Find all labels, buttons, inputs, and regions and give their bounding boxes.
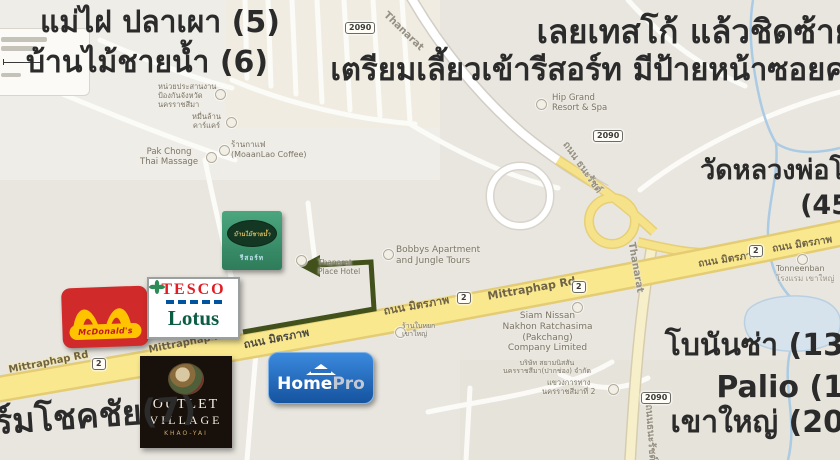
annotation-temple: วัดหลวงพ่อโ (700, 155, 840, 188)
poi-government-office: หน่วยประสานงานป้องกันจังหวัดนครราชสีมา (158, 82, 216, 109)
homepro-wordmark: HomePro (277, 376, 365, 393)
route-shield-2: 2 (92, 358, 106, 370)
route-shield-2: 2 (457, 292, 471, 304)
poi-hip-grand-resort: Hip GrandResort & Spa (552, 93, 607, 113)
annotation-bonanza: โบนันซ่า (13 (665, 328, 840, 365)
annotation-restaurant-6: บ้านไม้ชายน้ำ (6) (26, 45, 268, 82)
poi-dot (206, 152, 217, 163)
poi-siam-nissan: Siam NissanNakhon Ratchasima(Pakchang)Co… (500, 311, 595, 354)
poi-highway-district: แขวงการทางนครราชสีมาที่ 2 (542, 378, 595, 396)
annotation-direction-line2: เตรียมเลี้ยวเข้ารีสอร์ท มีป้ายหน้าซอยค (330, 52, 840, 90)
route-shield-2090: 2090 (345, 22, 375, 34)
poi-dot (296, 255, 307, 266)
homepro-roof-icon (306, 364, 336, 375)
route-shield-2090: 2090 (593, 130, 623, 142)
mcdonalds-logo: McDonald's (61, 286, 149, 349)
poi-dot (219, 145, 230, 156)
poi-dot (608, 384, 619, 395)
poi-thanarat-place: ThanaratPlace Hotel (318, 258, 360, 276)
tesco-dashes-icon (166, 300, 222, 304)
lotus-flower-icon (149, 279, 165, 295)
lotus-wordmark: Lotus (168, 307, 219, 329)
annotation-palio: Palio (1 (716, 370, 840, 407)
tesco-wordmark: TESCO (161, 282, 225, 298)
map-canvas: Mittraphap Rd Mittraphap Rd ถนน มิตรภาพ … (0, 0, 840, 460)
poi-bobbys-apartment: Bobbys Apartmentand Jungle Tours (396, 245, 480, 267)
resort-logo-subtitle: รีสอร์ท (240, 253, 264, 263)
poi-car-care: หมื่นล้านคาร์แคร์ (192, 112, 221, 130)
poi-pak-chong-thai-massage: Pak ChongThai Massage (140, 147, 198, 167)
tesco-lotus-logo: TESCO Lotus (147, 277, 240, 339)
poi-coffee-shop: ร้านกาแฟ(MoaanLao Coffee) (231, 140, 307, 159)
route-shield-2: 2 (572, 281, 586, 293)
poi-dot (226, 117, 237, 128)
poi-tonneenban: Tonneenbanโรงแรม เขาใหญ่ (776, 264, 834, 283)
route-shield-2090: 2090 (641, 392, 671, 404)
resort-logo-oval: บ้านไม้ชายน้ำ (227, 220, 277, 247)
annotation-khao-yai: เขาใหญ่ (20 (671, 405, 840, 442)
annotation-temple-distance: (45 (800, 190, 840, 223)
poi-dot (383, 249, 394, 260)
annotation-direction-line1: เลยเทสโก้ แล้วชิดซ้าย (537, 12, 840, 52)
annotation-restaurant-5: แม่ไฝ ปลาเผา (5) (40, 5, 280, 42)
poi-baiyok-shop: ร้านใบหยกเขาใหญ่ (402, 322, 435, 339)
poi-dot (536, 99, 547, 110)
poi-dot (215, 89, 226, 100)
poi-siam-nissan-thai: บริษัท สยามนิสสันนครราชสีมา(ปากช่อง) จำก… (492, 359, 602, 376)
resort-logo: บ้านไม้ชายน้ำ รีสอร์ท (222, 211, 282, 270)
scale-text-bar (1, 73, 21, 77)
route-shield-2: 2 (749, 245, 763, 257)
homepro-logo: HomePro (268, 352, 374, 404)
mcdonalds-wordmark: McDonald's (69, 323, 141, 341)
